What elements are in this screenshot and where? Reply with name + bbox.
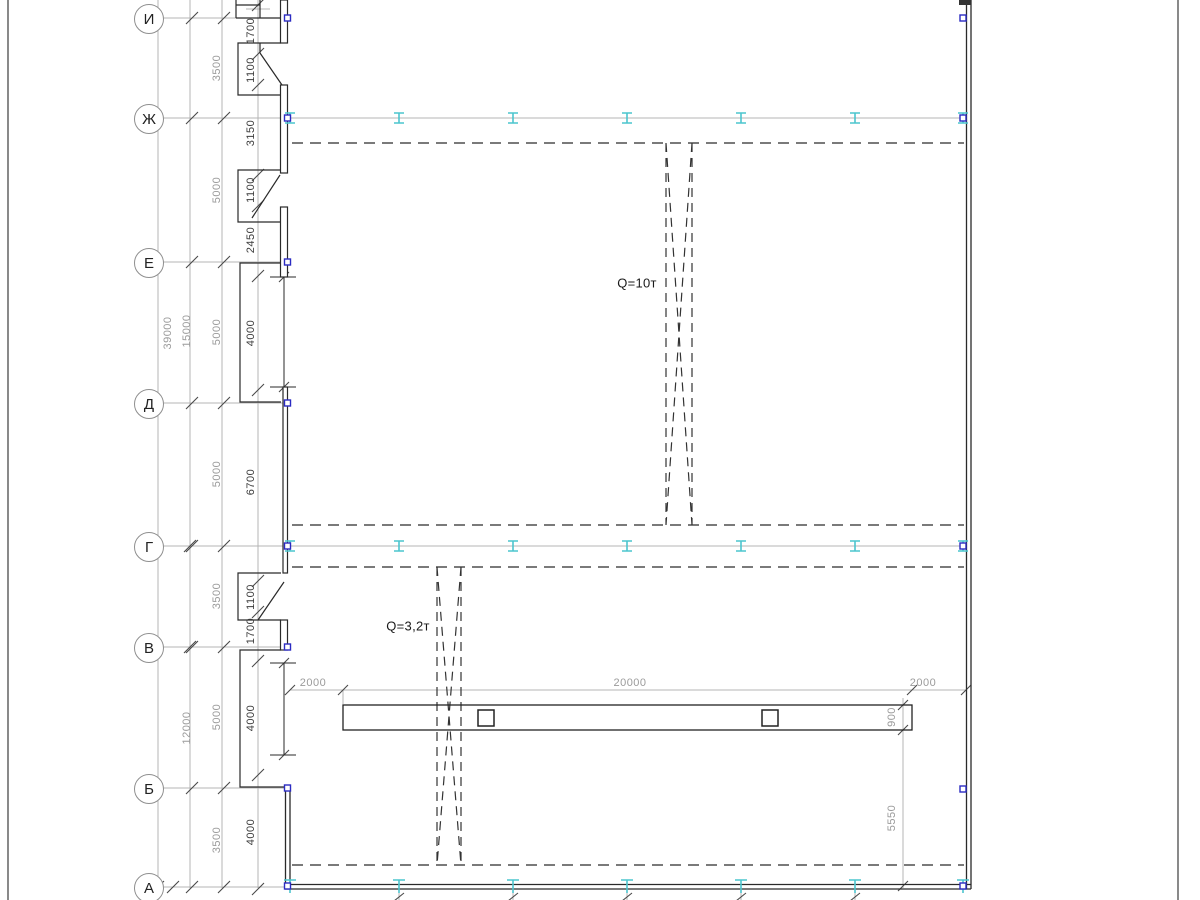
dimension-label: 6700 [245,469,257,495]
dimension-label: 5550 [886,805,898,831]
dimension-label: 1700 [245,18,257,44]
drawing-linework [0,0,1200,900]
dimension-label: 39000 [162,316,174,349]
axis-bubble: А [134,873,164,900]
crane-runway-lines [292,143,964,865]
axis-label: Д [144,396,154,413]
dimension-label: 4000 [245,320,257,346]
column-anchor-markers [285,15,967,889]
axis-label: А [144,880,154,897]
dimension-tick-marks [152,0,971,900]
dimension-label: 2000 [300,677,326,689]
dimension-label: 4000 [245,705,257,731]
axis-label: Г [145,539,153,556]
axis-label: Е [144,255,154,272]
axis-label: Ж [142,111,156,128]
axis-label: В [144,640,154,657]
crane-capacity-label: Q=10т [617,276,657,291]
dimension-label: 2000 [910,677,936,689]
dimension-label: 5000 [211,704,223,730]
dimension-label: 3150 [245,120,257,146]
dimension-label: 3500 [211,583,223,609]
crane-bridge-10t [666,143,692,525]
dimension-label: 2450 [245,227,257,253]
dimension-label: 1100 [245,584,257,610]
crane-bridge-3-2t [437,567,461,865]
dimension-label: 1700 [245,618,257,644]
building-walls [285,0,971,889]
axis-bubble: И [134,4,164,34]
dimension-label: 1100 [245,177,257,203]
dimension-label: 12000 [181,711,193,744]
dimension-label: 900 [886,707,898,727]
dimension-label: 5000 [211,461,223,487]
axis-bubble: Д [134,389,164,419]
dimension-label: 3500 [211,827,223,853]
crane-capacity-label: Q=3,2т [386,619,430,634]
dimension-label: 4000 [245,819,257,845]
grid-and-dimension-lines [158,0,966,900]
dimension-label: 1100 [245,57,257,83]
axis-label: И [144,11,155,28]
dimension-label: 5000 [211,177,223,203]
monorail-beam [343,705,912,730]
axis-bubble: Г [134,532,164,562]
axis-label: Б [144,781,154,798]
steel-column-symbols [284,113,969,893]
dimension-label: 15000 [181,314,193,347]
sheet-frame [8,0,1178,900]
axis-bubble: Б [134,774,164,804]
dimension-label: 20000 [613,677,646,689]
axis-bubble: В [134,633,164,663]
axis-bubble: Ж [134,104,164,134]
dimension-label: 5000 [211,319,223,345]
cad-drawing-canvas[interactable]: ИЖЕДГВБА39000150001200035005000500050003… [0,0,1200,900]
dimension-label: 3500 [211,55,223,81]
axis-bubble: Е [134,248,164,278]
